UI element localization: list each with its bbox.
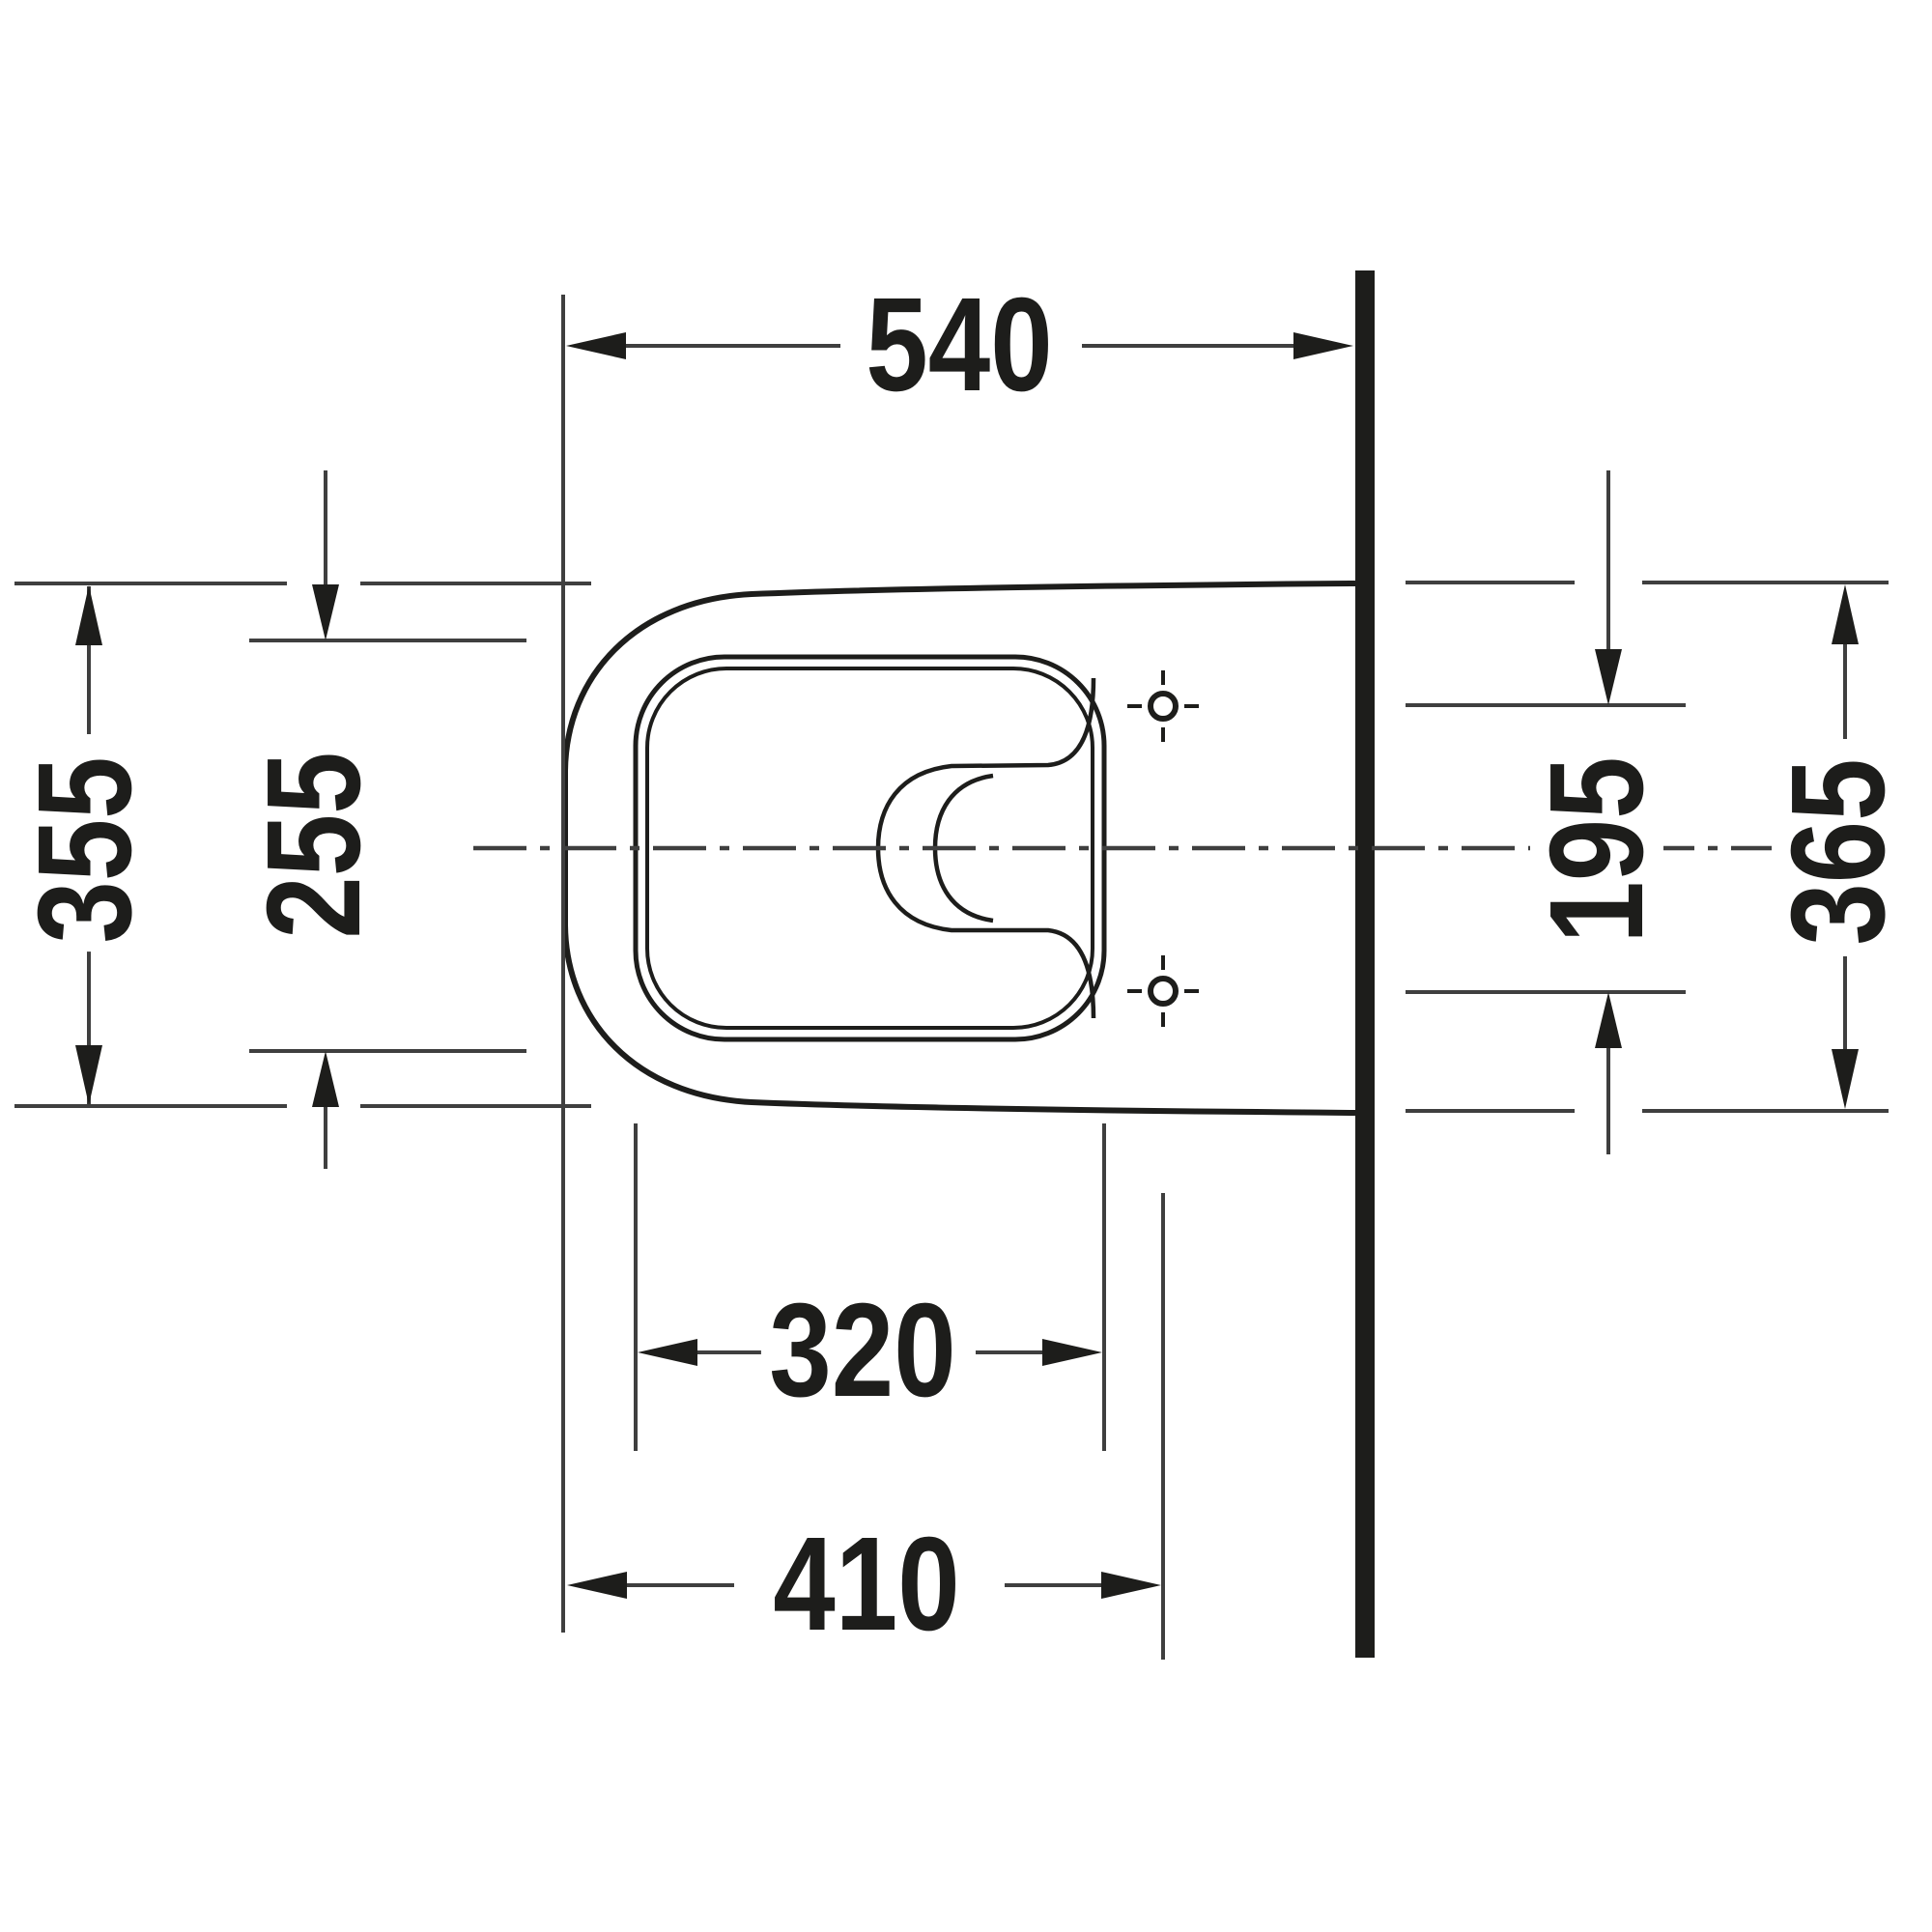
fixing-hole-top-icon <box>1127 670 1199 742</box>
dim-label-195: 195 <box>1530 749 1663 952</box>
drawing-canvas: 540 355 255 195 365 320 410 <box>0 0 1932 1932</box>
wall-line <box>1355 270 1375 1658</box>
dim-label-355: 355 <box>18 749 152 952</box>
dim-label-410: 410 <box>765 1518 968 1651</box>
dim-label-320: 320 <box>761 1284 964 1417</box>
dim-label-365: 365 <box>1772 751 1905 953</box>
dim-label-255: 255 <box>247 744 381 947</box>
dim-label-540: 540 <box>858 278 1061 412</box>
fixing-hole-bottom-icon <box>1127 955 1199 1027</box>
